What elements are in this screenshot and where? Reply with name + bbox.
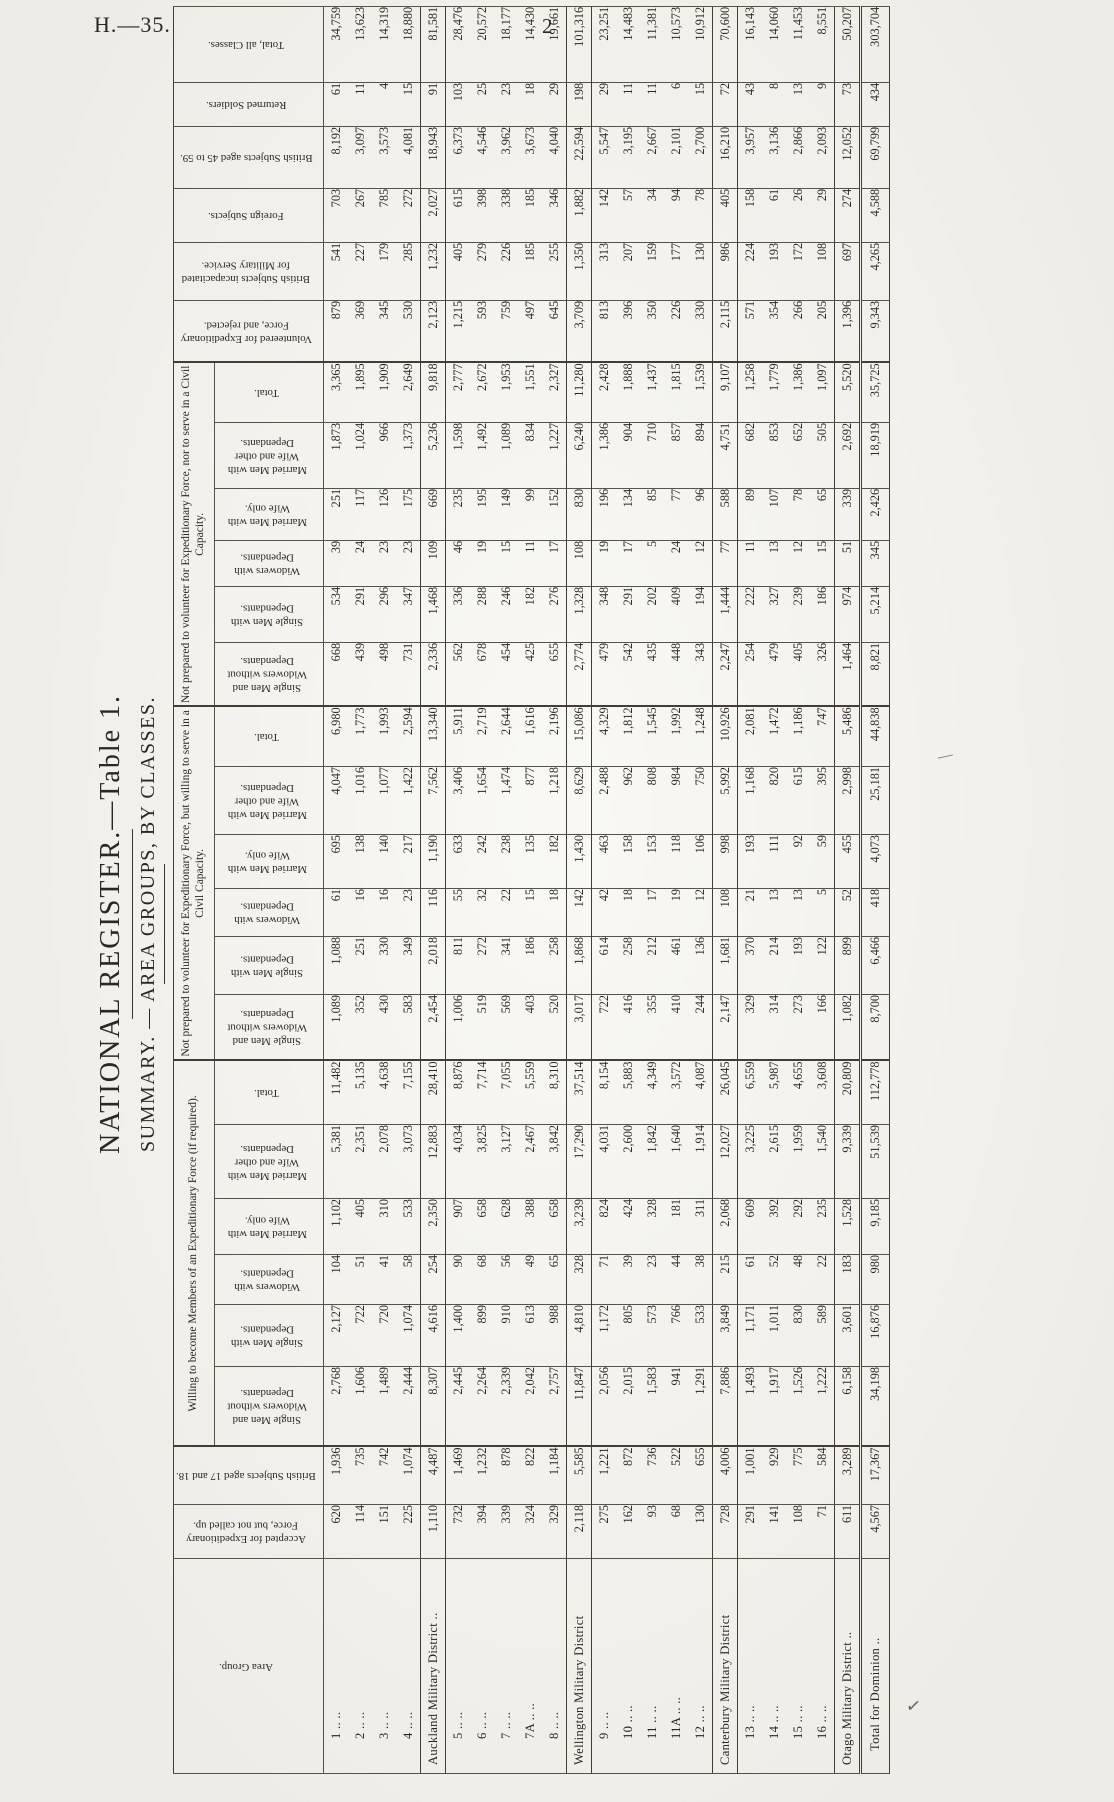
value-cell: 4,655 [786,1060,810,1124]
value-cell: 2,649 [396,362,421,422]
value-cell: 42 [592,888,617,936]
value-cell: 341 [494,936,518,994]
value-cell: 13,340 [421,706,446,766]
value-cell: 682 [738,422,763,488]
table-row: 4 .. .. 2251,0742,4441,074585333,0737,15… [396,6,421,1773]
value-cell: 70,600 [713,6,738,82]
value-cell: 533 [396,1199,421,1255]
value-cell: 879 [324,300,349,362]
value-cell: 2,594 [396,706,421,766]
value-cell: 3,608 [810,1060,835,1124]
value-cell: 735 [348,1447,372,1505]
value-cell: 2,015 [616,1367,640,1447]
value-cell: 18,919 [861,422,890,488]
value-cell: 1,868 [567,936,592,994]
sub-header-total: Total. [215,362,324,422]
value-cell: 345 [861,540,890,586]
value-cell: 588 [713,488,738,540]
value-cell: 8,307 [421,1367,446,1447]
value-cell: 101,316 [567,6,592,82]
value-cell: 258 [542,936,567,994]
value-cell: 244 [688,994,713,1060]
value-cell: 1,186 [786,706,810,766]
value-cell: 291 [738,1505,763,1559]
group-header-not-prepared: Not prepared to volunteer for Expedition… [174,362,215,706]
value-cell: 4,006 [713,1447,738,1505]
value-cell: 5 [810,888,835,936]
table-body: 1 .. .. 6201,9362,7682,1271041,1025,3811… [324,6,890,1773]
value-cell: 1,882 [567,188,592,242]
value-cell: 5,585 [567,1447,592,1505]
value-cell: 28,476 [446,6,471,82]
value-cell: 78 [786,488,810,540]
value-cell: 258 [616,936,640,994]
value-cell: 1,444 [713,586,738,642]
value-cell: 193 [762,242,786,300]
row-label: 7 .. .. [494,1559,518,1774]
value-cell: 678 [470,642,494,706]
sub-header-single-no-dependants: Single Men and Widowers without Dependan… [215,642,324,706]
value-cell: 498 [372,642,396,706]
value-cell: 2,339 [494,1367,518,1447]
row-label: 7A .. .. [518,1559,542,1774]
value-cell: 19 [470,540,494,586]
value-cell: 834 [518,422,542,488]
value-cell: 177 [664,242,688,300]
value-cell: 2,454 [421,994,446,1060]
value-cell: 81,581 [421,6,446,82]
value-cell: 19 [664,888,688,936]
value-cell: 8,310 [542,1060,567,1124]
value-cell: 569 [494,994,518,1060]
value-cell: 1,184 [542,1447,567,1505]
value-cell: 878 [494,1447,518,1505]
value-cell: 2,336 [421,642,446,706]
rotated-table-sheet: NATIONAL REGISTER.—Table 1. SUMMARY. — A… [95,74,967,1774]
value-cell: 2,196 [542,706,567,766]
row-label: 11A .. .. [664,1559,688,1774]
value-cell: 1,074 [396,1447,421,1505]
value-cell: 8 [762,82,786,126]
value-cell: 1,082 [835,994,861,1060]
value-cell: 822 [518,1447,542,1505]
value-cell: 4,081 [396,126,421,188]
value-cell: 2,719 [470,706,494,766]
value-cell: 18 [518,82,542,126]
value-cell: 141 [762,1505,786,1559]
value-cell: 1,222 [810,1367,835,1447]
value-cell: 2,027 [421,188,446,242]
value-cell: 16 [372,888,396,936]
table-row: 1 .. .. 6201,9362,7682,1271041,1025,3811… [324,6,349,1773]
value-cell: 111 [762,834,786,888]
value-cell: 29 [592,82,617,126]
value-cell: 2,081 [738,706,763,766]
value-cell: 2,068 [713,1199,738,1255]
value-cell: 2,042 [518,1367,542,1447]
value-cell: 2,093 [810,126,835,188]
value-cell: 29 [810,188,835,242]
value-cell: 1,873 [324,422,349,488]
value-cell: 251 [348,936,372,994]
value-cell: 1,773 [348,706,372,766]
value-cell: 339 [494,1505,518,1559]
value-cell: 9,185 [861,1199,890,1255]
row-label: 1 .. .. [324,1559,349,1774]
value-cell: 9,818 [421,362,446,422]
sub-header-married-other-dependants: Married Men with Wife and other Dependan… [215,766,324,834]
value-cell: 439 [348,642,372,706]
value-cell: 2,056 [592,1367,617,1447]
value-cell: 14,430 [518,6,542,82]
value-cell: 728 [713,1505,738,1559]
value-cell: 430 [372,994,396,1060]
value-cell: 5,547 [592,126,617,188]
value-cell: 1,215 [446,300,471,362]
value-cell: 2,467 [518,1125,542,1199]
value-cell: 354 [762,300,786,362]
value-cell: 12 [688,540,713,586]
value-cell: 345 [372,300,396,362]
value-cell: 158 [738,188,763,242]
value-cell: 1,437 [640,362,664,422]
value-cell: 3,195 [616,126,640,188]
value-cell: 1,936 [324,1447,349,1505]
value-cell: 584 [810,1447,835,1505]
value-cell: 108 [567,540,592,586]
value-cell: 2,350 [421,1199,446,1255]
value-cell: 22,594 [567,126,592,188]
value-cell: 15 [396,82,421,126]
value-cell: 23 [372,540,396,586]
value-cell: 1,493 [738,1367,763,1447]
value-cell: 11 [518,540,542,586]
value-cell: 10,912 [688,6,713,82]
value-cell: 8,700 [861,994,890,1060]
value-cell: 2,672 [470,362,494,422]
value-cell: 7,714 [470,1060,494,1124]
value-cell: 573 [640,1305,664,1367]
value-cell: 238 [494,834,518,888]
value-cell: 18 [542,888,567,936]
value-cell: 347 [396,586,421,642]
value-cell: 15,086 [567,706,592,766]
table-row: 7A .. .. 3248222,042613493882,4675,55940… [518,6,542,1773]
value-cell: 759 [494,300,518,362]
value-cell: 394 [470,1505,494,1559]
value-cell: 542 [616,642,640,706]
value-cell: 12,883 [421,1125,446,1199]
value-cell: 614 [592,936,617,994]
value-cell: 24 [348,540,372,586]
value-cell: 58 [396,1255,421,1305]
row-label: 11 .. .. [640,1559,664,1774]
value-cell: 2,147 [713,994,738,1060]
table-row: 12 .. .. 1306551,291533383111,9144,08724… [688,6,713,1773]
value-cell: 5 [640,540,664,586]
value-cell: 1,551 [518,362,542,422]
value-cell: 215 [713,1255,738,1305]
value-cell: 159 [640,242,664,300]
value-cell: 2,998 [835,766,861,834]
value-cell: 7,886 [713,1367,738,1447]
value-cell: 1,221 [592,1447,617,1505]
row-label: 10 .. .. [616,1559,640,1774]
value-cell: 186 [810,586,835,642]
value-cell: 697 [835,242,861,300]
value-cell: 89 [738,488,763,540]
value-cell: 227 [348,242,372,300]
value-cell: 330 [372,936,396,994]
table-row: 11A .. .. 68522941766441811,6403,5724104… [664,6,688,1773]
value-cell: 71 [810,1505,835,1559]
value-cell: 1,386 [786,362,810,422]
value-cell: 1,992 [664,706,688,766]
value-cell: 658 [470,1199,494,1255]
group-header-civil-capacity: Not prepared to volunteer for Expedition… [174,706,215,1060]
value-cell: 25,181 [861,766,890,834]
value-cell: 4,087 [688,1060,713,1124]
value-cell: 11,280 [567,362,592,422]
sub-header-single-with-dependants: Single Men with Dependants. [215,586,324,642]
value-cell: 15 [518,888,542,936]
value-cell: 292 [786,1199,810,1255]
value-cell: 112,778 [861,1060,890,1124]
value-cell: 108 [810,242,835,300]
value-cell: 1,640 [664,1125,688,1199]
value-cell: 254 [738,642,763,706]
value-cell: 107 [762,488,786,540]
value-cell: 78 [688,188,713,242]
value-cell: 56 [494,1255,518,1305]
value-cell: 288 [470,586,494,642]
value-cell: 5,911 [446,706,471,766]
value-cell: 1,232 [470,1447,494,1505]
value-cell: 9,107 [713,362,738,422]
value-cell: 655 [688,1447,713,1505]
value-cell: 246 [494,586,518,642]
table-row: 2 .. .. 1147351,606722514052,3515,135352… [348,6,372,1773]
value-cell: 1,232 [421,242,446,300]
value-cell: 185 [518,188,542,242]
table-row: Auckland Military District .. 1,1104,487… [421,6,446,1773]
value-cell: 51,539 [861,1125,890,1199]
value-cell: 974 [835,586,861,642]
value-cell: 1,328 [567,586,592,642]
value-cell: 310 [372,1199,396,1255]
table-row: 5 .. .. 7321,4692,4451,400909074,0348,87… [446,6,471,1773]
value-cell: 224 [738,242,763,300]
value-cell: 51 [348,1255,372,1305]
value-cell: 59 [810,834,835,888]
value-cell: 4,073 [861,834,890,888]
value-cell: 731 [396,642,421,706]
value-cell: 7,155 [396,1060,421,1124]
value-cell: 214 [762,936,786,994]
row-label: Otago Military District .. [835,1559,861,1774]
value-cell: 11,453 [786,6,810,82]
value-cell: 182 [518,586,542,642]
value-cell: 1,464 [835,642,861,706]
value-cell: 1,953 [494,362,518,422]
value-cell: 346 [542,188,567,242]
document-code: H.—35. [94,12,171,38]
value-cell: 266 [786,300,810,362]
value-cell: 235 [446,488,471,540]
value-cell: 90 [446,1255,471,1305]
value-cell: 2,426 [861,488,890,540]
value-cell: 22 [810,1255,835,1305]
value-cell: 1,909 [372,362,396,422]
value-cell: 5,135 [348,1060,372,1124]
value-cell: 55 [446,888,471,936]
value-cell: 8,551 [810,6,835,82]
value-cell: 4,638 [372,1060,396,1124]
value-cell: 11 [640,82,664,126]
table-row: Wellington Military District 2,1185,5851… [567,6,592,1773]
value-cell: 122 [810,936,835,994]
value-cell: 479 [762,642,786,706]
value-cell: 19,661 [542,6,567,82]
value-cell: 703 [324,188,349,242]
value-cell: 96 [688,488,713,540]
value-cell: 1,654 [470,766,494,834]
sub-header-married-wife-only: Married Men with Wife only. [215,834,324,888]
value-cell: 1,190 [421,834,446,888]
value-cell: 38 [688,1255,713,1305]
value-cell: 18,177 [494,6,518,82]
value-cell: 9,339 [835,1125,861,1199]
value-cell: 1,888 [616,362,640,422]
value-cell: 140 [372,834,396,888]
value-cell: 61 [738,1255,763,1305]
value-cell: 899 [835,936,861,994]
value-cell: 2,757 [542,1367,567,1447]
value-cell: 313 [592,242,617,300]
sub-header-married-other-dependants: Married Men with Wife and other Dependan… [215,422,324,488]
value-cell: 2,428 [592,362,617,422]
value-cell: 658 [542,1199,567,1255]
value-cell: 4,329 [592,706,617,766]
value-cell: 39 [324,540,349,586]
value-cell: 435 [640,642,664,706]
col-header-aged-17-18: British Subjects aged 17 and 18. [174,1447,324,1505]
value-cell: 276 [542,586,567,642]
value-cell: 32 [470,888,494,936]
value-cell: 279 [470,242,494,300]
value-cell: 2,692 [835,422,861,488]
col-header-foreign-subjects: Foreign Subjects. [174,188,324,242]
value-cell: 3,673 [518,126,542,188]
table-row: 16 .. .. 715841,222589222351,5403,608166… [810,6,835,1773]
value-cell: 695 [324,834,349,888]
value-cell: 1,842 [640,1125,664,1199]
value-cell: 6,466 [861,936,890,994]
value-cell: 811 [446,936,471,994]
value-cell: 65 [810,488,835,540]
value-cell: 17 [542,540,567,586]
value-cell: 899 [470,1305,494,1367]
value-cell: 872 [616,1447,640,1505]
value-cell: 929 [762,1447,786,1505]
table-title: NATIONAL REGISTER.—Table 1. [95,74,127,1774]
value-cell: 4,031 [592,1125,617,1199]
value-cell: 395 [810,766,835,834]
value-cell: 461 [664,936,688,994]
sub-header-single-no-dependants: Single Men and Widowers without Dependan… [215,1367,324,1447]
value-cell: 2,700 [688,126,713,188]
value-cell: 4,040 [542,126,567,188]
value-cell: 3,097 [348,126,372,188]
value-cell: 212 [640,936,664,994]
value-cell: 226 [494,242,518,300]
value-cell: 7,055 [494,1060,518,1124]
value-cell: 275 [592,1505,617,1559]
value-cell: 710 [640,422,664,488]
value-cell: 338 [494,188,518,242]
col-header-area-group: Area Group. [174,1559,324,1774]
value-cell: 153 [640,834,664,888]
value-cell: 1,468 [421,586,446,642]
table-row: Total for Dominion .. 4,56717,36734,1981… [861,6,890,1773]
value-cell: 1,089 [494,422,518,488]
value-cell: 194 [688,586,713,642]
value-cell: 18 [616,888,640,936]
value-cell: 296 [372,586,396,642]
value-cell: 645 [542,300,567,362]
value-cell: 1,396 [835,300,861,362]
row-label: 3 .. .. [372,1559,396,1774]
value-cell: 3,406 [446,766,471,834]
value-cell: 8,154 [592,1060,617,1124]
value-cell: 126 [372,488,396,540]
table-row: 3 .. .. 1517421,489720413102,0784,638430… [372,6,396,1773]
value-cell: 988 [542,1305,567,1367]
value-cell: 1,400 [446,1305,471,1367]
value-cell: 16,876 [861,1305,890,1367]
value-cell: 668 [324,642,349,706]
value-cell: 613 [518,1305,542,1367]
sub-header-total: Total. [215,706,324,766]
value-cell: 8,876 [446,1060,471,1124]
col-header-returned-soldiers: Returned Soldiers. [174,82,324,126]
value-cell: 328 [567,1255,592,1305]
value-cell: 72 [713,82,738,126]
value-cell: 593 [470,300,494,362]
value-cell: 272 [396,188,421,242]
value-cell: 217 [396,834,421,888]
value-cell: 1,172 [592,1305,617,1367]
sub-header-widowers-with-dependants: Widowers with Dependants. [215,1255,324,1305]
value-cell: 405 [713,188,738,242]
value-cell: 91 [421,82,446,126]
value-cell: 186 [518,936,542,994]
value-cell: 183 [835,1255,861,1305]
table-row: 9 .. .. 2751,2212,0561,172718244,0318,15… [592,6,617,1773]
table-header: Area Group. Accepted for Expedi­tionary … [174,6,324,1773]
value-cell: 17,290 [567,1125,592,1199]
row-label: 13 .. .. [738,1559,763,1774]
value-cell: 1,914 [688,1125,713,1199]
value-cell: 328 [640,1199,664,1255]
table-row: 10 .. .. 1628722,015805394242,6005,88341… [616,6,640,1773]
value-cell: 1,227 [542,422,567,488]
value-cell: 409 [664,586,688,642]
value-cell: 454 [494,642,518,706]
value-cell: 336 [446,586,471,642]
value-cell: 314 [762,994,786,1060]
value-cell: 73 [835,82,861,126]
